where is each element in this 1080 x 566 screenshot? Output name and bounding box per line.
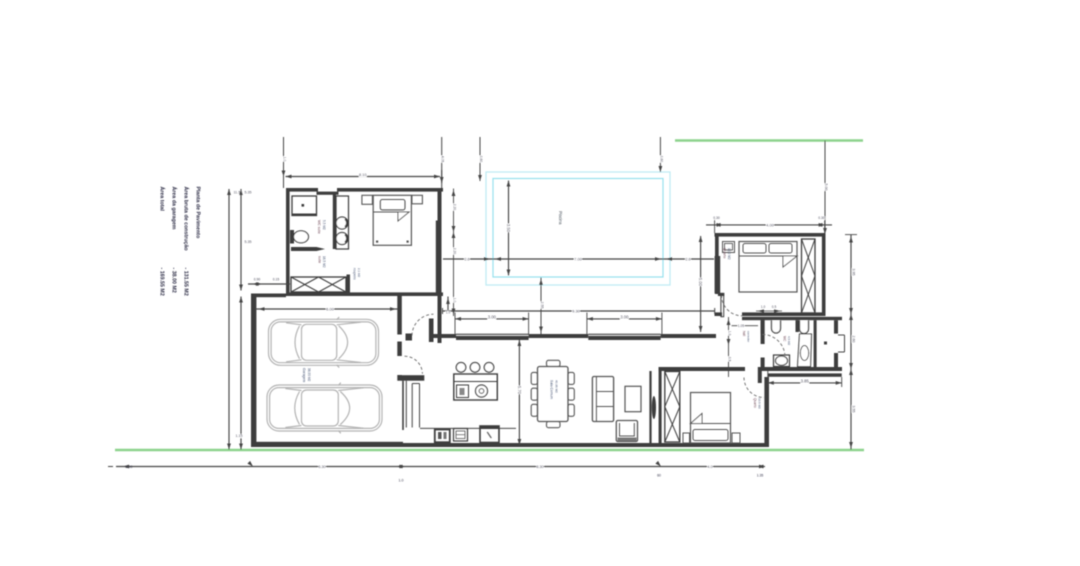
svg-text:4.5 M2: 4.5 M2 [787, 336, 791, 346]
svg-text:3.55: 3.55 [852, 406, 856, 413]
svg-text:hall: hall [742, 331, 746, 336]
svg-text:2.6: 2.6 [465, 258, 470, 262]
svg-text:roupeiro: roupeiro [353, 268, 357, 280]
svg-text:3.00: 3.00 [488, 315, 497, 320]
svg-text:8.10: 8.10 [359, 173, 366, 177]
svg-text:corredor: corredor [747, 331, 751, 342]
svg-text:Área bruta de construção: Área bruta de construção [183, 187, 190, 252]
svg-text:0.5: 0.5 [772, 305, 777, 309]
svg-text:2.20: 2.20 [453, 204, 457, 211]
svg-text:3.50: 3.50 [506, 224, 511, 233]
svg-text:2.60: 2.60 [852, 336, 856, 343]
svg-text:0.30: 0.30 [713, 216, 720, 220]
svg-text:1.0: 1.0 [453, 298, 457, 303]
svg-text:6.30: 6.30 [319, 465, 326, 469]
svg-text:0.60: 0.60 [659, 156, 663, 163]
svg-text:Área da garagem: Área da garagem [171, 187, 178, 230]
svg-text:12.0 M2: 12.0 M2 [727, 248, 731, 260]
svg-text:3.95: 3.95 [852, 269, 856, 276]
svg-text:10.5 M2: 10.5 M2 [758, 398, 762, 409]
svg-text:Piscina: Piscina [558, 211, 563, 225]
svg-text:4.0: 4.0 [708, 465, 713, 469]
svg-text:2.20: 2.20 [453, 248, 457, 255]
svg-text:3.00: 3.00 [126, 465, 133, 469]
svg-text:16.5 M2: 16.5 M2 [322, 256, 326, 268]
svg-text:Área total: Área total [159, 187, 166, 212]
svg-text:40.95 M2: 40.95 M2 [555, 380, 559, 393]
svg-text:0.15: 0.15 [273, 278, 280, 282]
svg-text:- 131.55 M2: - 131.55 M2 [183, 268, 189, 296]
svg-text:5.35: 5.35 [245, 240, 252, 244]
svg-text:5.00: 5.00 [824, 184, 828, 191]
svg-text:1.35: 1.35 [757, 474, 764, 478]
svg-text:38.00 M2: 38.00 M2 [307, 368, 311, 382]
svg-text:Sala Comum: Sala Comum [550, 380, 554, 399]
svg-text:3.85: 3.85 [801, 379, 810, 384]
svg-text:8.30: 8.30 [537, 465, 544, 469]
svg-text:0.60: 0.60 [479, 156, 483, 163]
svg-text:5.70: 5.70 [517, 386, 522, 395]
svg-text:2.6: 2.6 [686, 258, 691, 262]
svg-text:5.5 M2: 5.5 M2 [322, 220, 326, 230]
svg-text:suite: suite [318, 256, 322, 263]
svg-text:- 38.00 M2: - 38.00 M2 [171, 268, 177, 293]
svg-text:Garagem: Garagem [302, 368, 306, 382]
svg-text:1.05: 1.05 [738, 324, 745, 328]
svg-text:1.0: 1.0 [283, 157, 287, 162]
svg-text:WC suite: WC suite [317, 220, 321, 234]
svg-text:Planta de Pavimento: Planta de Pavimento [195, 187, 201, 240]
svg-text:6.00: 6.00 [326, 306, 335, 311]
svg-text:0.9: 0.9 [728, 357, 732, 362]
svg-text:9.30: 9.30 [572, 309, 579, 313]
svg-text:4.00: 4.00 [766, 223, 773, 227]
svg-text:0.30: 0.30 [818, 216, 825, 220]
svg-text:Quarto: Quarto [723, 248, 727, 258]
svg-text:3.00: 3.00 [620, 315, 629, 320]
svg-text:1.15: 1.15 [236, 434, 243, 438]
svg-text:Quarto: Quarto [753, 398, 757, 408]
svg-text:1.0: 1.0 [728, 331, 732, 336]
svg-text:0.90: 0.90 [254, 278, 261, 282]
svg-text:5.00: 5.00 [698, 278, 703, 287]
svg-text:1.0: 1.0 [446, 311, 451, 315]
svg-text:WC: WC [783, 336, 787, 342]
svg-text:60: 60 [657, 474, 661, 478]
svg-text:2.1 M2: 2.1 M2 [357, 268, 361, 278]
svg-text:7.00: 7.00 [574, 258, 581, 262]
svg-text:2.55: 2.55 [540, 302, 544, 309]
svg-text:- 169.55 M2: - 169.55 M2 [159, 268, 165, 296]
svg-text:1.0: 1.0 [761, 305, 766, 309]
svg-text:4.05: 4.05 [441, 156, 445, 163]
svg-text:1.0: 1.0 [399, 479, 404, 483]
svg-text:5.35: 5.35 [245, 191, 252, 195]
